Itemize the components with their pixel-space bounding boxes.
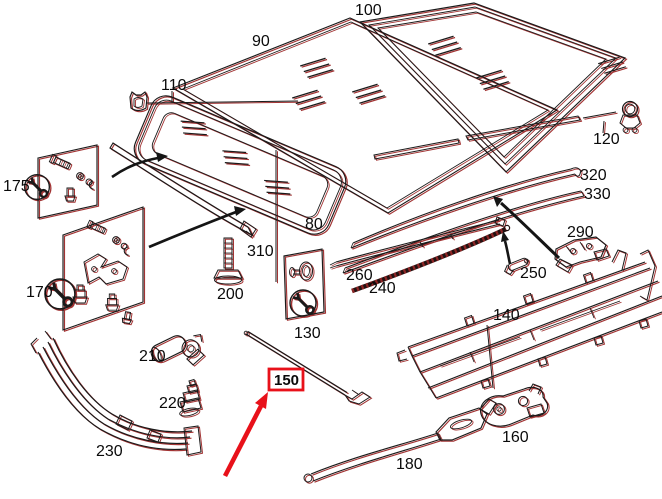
highlight-arrow (225, 406, 261, 476)
part-label-290[interactable]: 290 (567, 224, 594, 241)
part-label-220[interactable]: 220 (159, 395, 186, 412)
highlight-arrowhead-icon (255, 392, 268, 409)
part-label-230[interactable]: 230 (96, 443, 123, 460)
part-label-130[interactable]: 130 (294, 325, 321, 342)
part-label-320[interactable]: 320 (580, 167, 607, 184)
part-label-210[interactable]: 210 (139, 348, 166, 365)
part-label-180[interactable]: 180 (396, 456, 423, 473)
part-label-330[interactable]: 330 (584, 186, 611, 203)
part-label-150-highlighted[interactable]: 150 (274, 372, 299, 389)
part-label-175[interactable]: 175 (3, 178, 30, 195)
part-label-240[interactable]: 240 (369, 280, 396, 297)
part-label-310[interactable]: 310 (247, 243, 274, 260)
part-label-250[interactable]: 250 (520, 265, 547, 282)
part-label-80[interactable]: 80 (305, 216, 323, 233)
parts-diagram-canvas: 100 90 110 120 175 320 330 80 290 310 26… (0, 0, 662, 499)
part-label-110[interactable]: 110 (161, 77, 187, 94)
part-label-120[interactable]: 120 (593, 131, 620, 148)
part-label-100[interactable]: 100 (355, 2, 382, 19)
arrowhead-icon (156, 152, 168, 162)
part-label-160[interactable]: 160 (502, 429, 529, 446)
part-label-90[interactable]: 90 (252, 33, 270, 50)
diagram-svg: 100 90 110 120 175 320 330 80 290 310 26… (0, 0, 662, 499)
part-label-200[interactable]: 200 (217, 286, 244, 303)
part-label-170[interactable]: 170 (26, 284, 53, 301)
arrowhead-icon (234, 206, 246, 216)
part-label-140[interactable]: 140 (493, 307, 520, 324)
